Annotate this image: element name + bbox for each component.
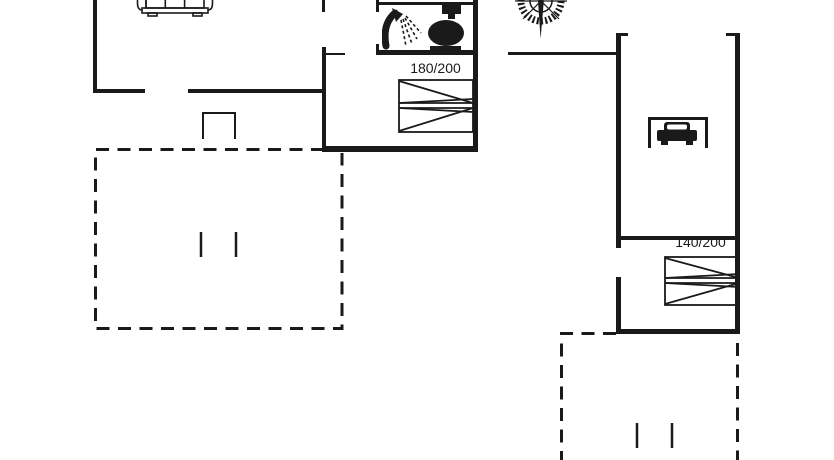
double-bed-140 [664,256,740,306]
compass-icon [512,0,570,42]
double-bed-180 [398,79,474,133]
car-icon [655,122,699,146]
terrace-left-outline [96,150,343,329]
bed-size-label: 140/200 [663,234,738,250]
terrace-right-outline-a [562,334,617,460]
floor-plan: 180/200 140/200 [0,0,834,460]
shower-icon [382,6,422,50]
toilet-icon [427,5,467,51]
bed-size-label: 180/200 [398,60,473,76]
sofa-icon [136,0,214,18]
